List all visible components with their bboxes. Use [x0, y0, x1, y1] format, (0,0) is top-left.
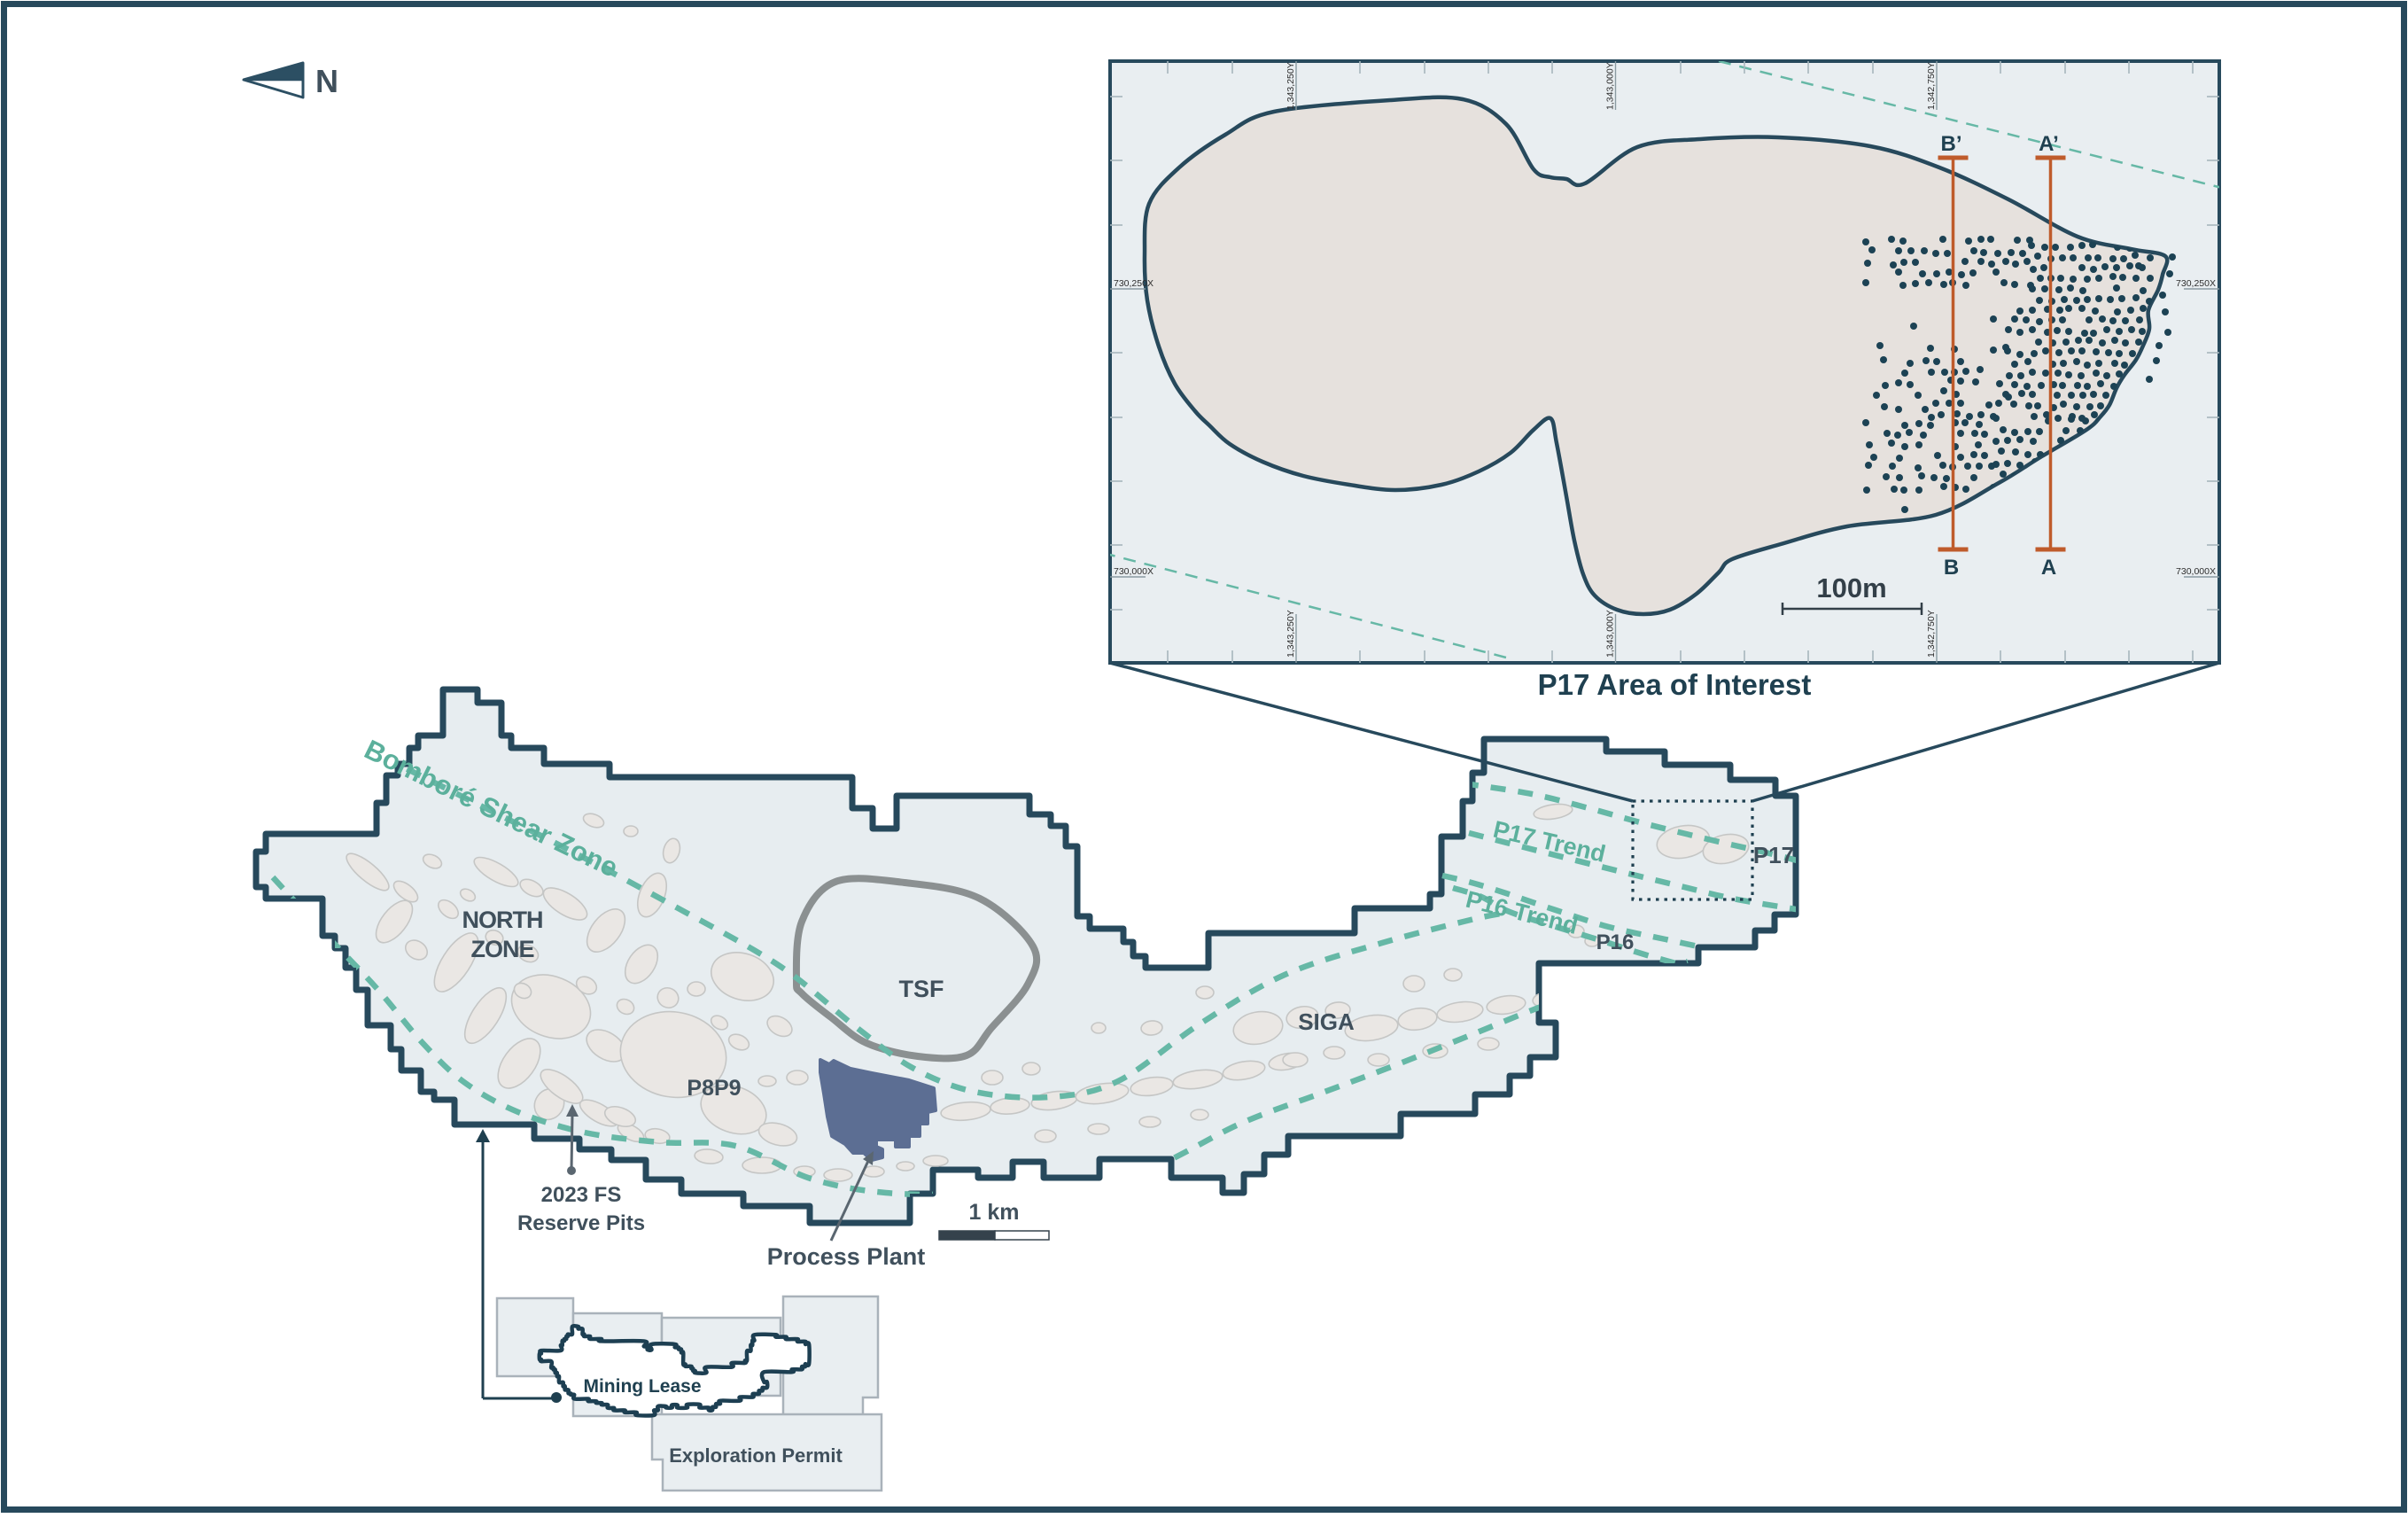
- svg-text:1,343,000Y: 1,343,000Y: [1605, 62, 1616, 110]
- svg-text:2023 FS: 2023 FS: [541, 1183, 622, 1207]
- svg-text:P17: P17: [1753, 842, 1794, 868]
- svg-text:1,343,000Y: 1,343,000Y: [1605, 610, 1616, 658]
- svg-text:A’: A’: [2039, 132, 2059, 156]
- svg-text:1,343,250Y: 1,343,250Y: [1286, 62, 1296, 110]
- svg-text:Exploration Permit: Exploration Permit: [669, 1444, 843, 1467]
- svg-text:Mining Lease: Mining Lease: [583, 1376, 701, 1397]
- svg-text:SIGA: SIGA: [1298, 1008, 1355, 1035]
- svg-text:100m: 100m: [1816, 572, 1886, 603]
- svg-text:P17 Area of Interest: P17 Area of Interest: [1538, 668, 1812, 701]
- svg-text:730,250X: 730,250X: [2176, 278, 2216, 289]
- svg-text:N: N: [315, 63, 338, 99]
- svg-text:Reserve Pits: Reserve Pits: [517, 1211, 645, 1235]
- svg-text:NORTH: NORTH: [462, 907, 543, 933]
- svg-text:1,342,750Y: 1,342,750Y: [1926, 62, 1937, 110]
- svg-text:P8P9: P8P9: [687, 1076, 741, 1101]
- svg-text:P16: P16: [1596, 930, 1635, 954]
- svg-text:730,250X: 730,250X: [1114, 278, 1154, 289]
- svg-text:ZONE: ZONE: [470, 936, 533, 962]
- svg-text:B: B: [1944, 556, 1959, 580]
- svg-text:1,342,750Y: 1,342,750Y: [1926, 610, 1937, 658]
- svg-text:730,000X: 730,000X: [2176, 566, 2216, 577]
- svg-text:1 km: 1 km: [969, 1200, 1020, 1225]
- svg-text:Process Plant: Process Plant: [767, 1243, 926, 1270]
- svg-text:B’: B’: [1941, 132, 1962, 156]
- svg-text:A: A: [2041, 556, 2056, 580]
- svg-text:1,343,250Y: 1,343,250Y: [1286, 610, 1296, 658]
- svg-text:TSF: TSF: [899, 976, 944, 1002]
- svg-text:730,000X: 730,000X: [1114, 566, 1154, 577]
